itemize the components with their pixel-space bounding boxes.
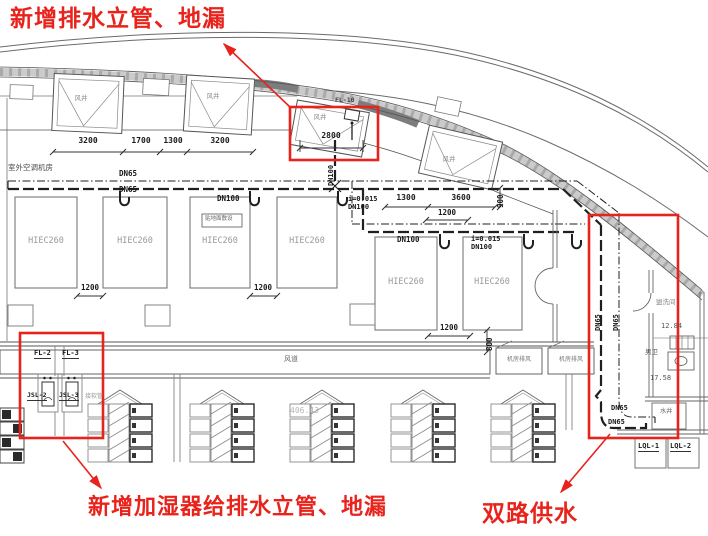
annotation-arrow-bottom-right	[561, 434, 610, 492]
drawing-canvas: 新增排水立管、地漏新增加湿器给排水立管、地漏双路供水室外空调机房风道盥洗间男卫水…	[0, 0, 708, 536]
highlight-box-supply	[589, 215, 678, 438]
highlight-box-humidifier	[20, 333, 103, 438]
water-shaft-box	[652, 403, 686, 429]
humidifier-devices	[38, 374, 82, 412]
ahu-units	[8, 197, 522, 330]
toilet-fixture	[668, 352, 694, 370]
chilled-riser-box-2	[668, 438, 699, 468]
note-box-floor-laid	[202, 214, 242, 227]
annotation-arrow-bottom-left	[63, 441, 101, 488]
equipment-modules	[0, 390, 555, 463]
machine-room-door	[535, 210, 557, 342]
drawing-svg	[0, 0, 708, 536]
chilled-riser-box-1	[635, 438, 666, 468]
